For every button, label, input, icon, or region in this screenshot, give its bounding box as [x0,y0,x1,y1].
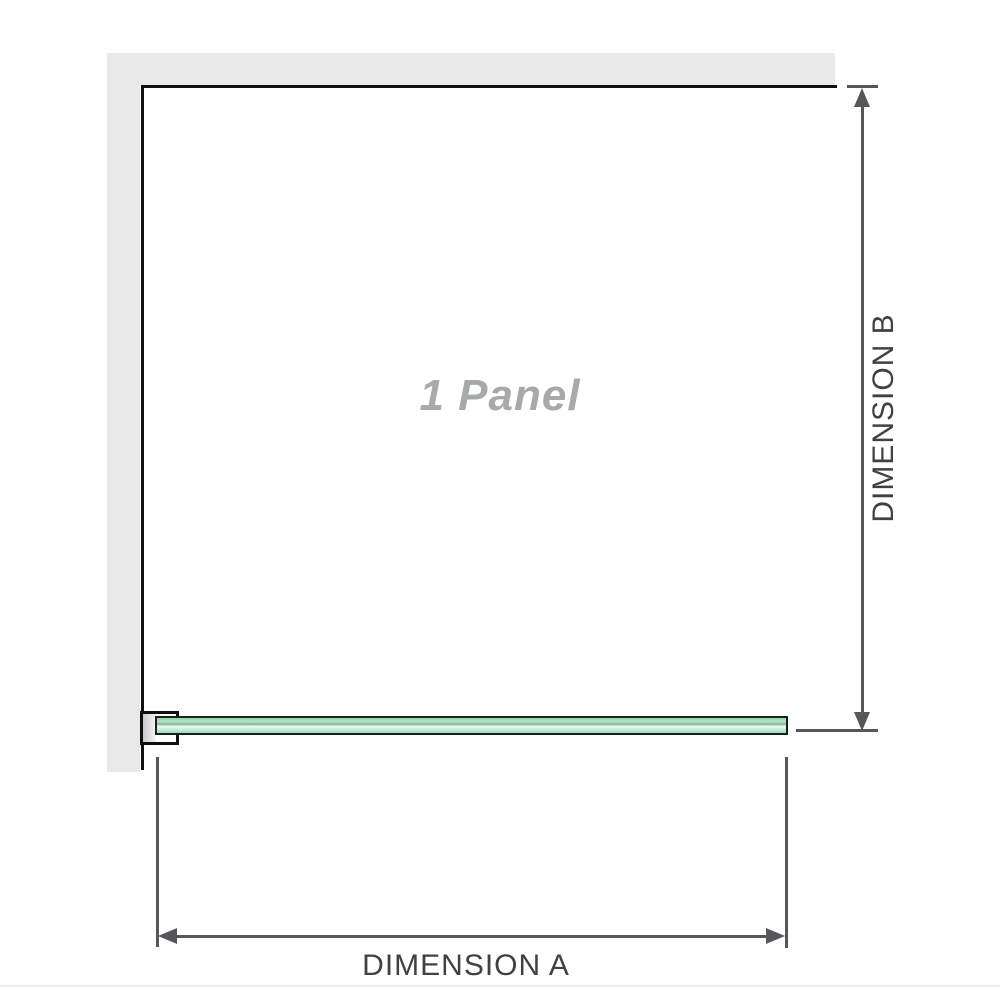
dimension-b-bottom-tick [796,729,878,732]
dimension-a-line [168,935,772,938]
dimension-b-line [861,98,864,722]
baseline-divider [0,985,1000,987]
arrow-left-icon [158,928,177,944]
panel-outline-left-edge [141,85,144,770]
dimension-a-left-extension-line [156,757,159,947]
dimension-a-right-extension-line [785,757,788,948]
panel-outline-top-edge [141,85,837,88]
dimension-b-label: DIMENSION B [867,313,901,522]
arrow-up-icon [854,88,870,107]
wall-top [107,53,835,85]
glass-panel-bar [155,716,788,735]
panel-label: 1 Panel [419,371,580,421]
arrow-right-icon [766,928,785,944]
dimension-diagram: 1 Panel DIMENSION B DIMENSION A [0,0,1000,1000]
wall-left [107,53,140,772]
dimension-a-label: DIMENSION A [362,949,570,983]
